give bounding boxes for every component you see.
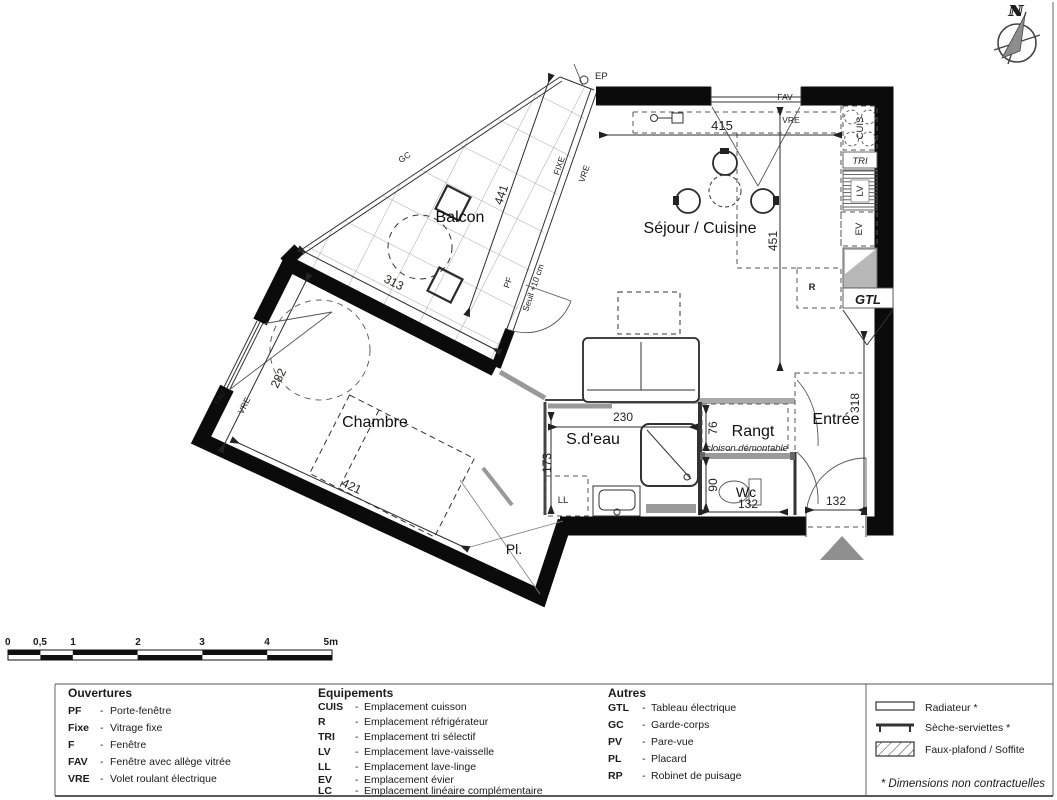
scale-tick-5m: 5m <box>324 637 339 648</box>
legend-item: PF-Porte-fenêtre <box>68 705 171 717</box>
floor-plan-sheet: N N <box>0 0 1057 800</box>
dim-132-entree: 132 <box>826 494 846 508</box>
fridge-label: R <box>809 282 816 293</box>
sejour-furniture <box>583 113 779 402</box>
legend-item: LL-Emplacement lave-linge <box>318 761 476 773</box>
fridge-zone <box>797 268 841 308</box>
dim-173: 173 <box>540 453 554 473</box>
room-label-balcon: Balcon <box>436 209 485 226</box>
tag-cloison: cloison démontable <box>706 443 788 454</box>
room-label-pl: Pl. <box>506 541 522 557</box>
dim-415: 415 <box>711 118 733 133</box>
room-label-chambre: Chambre <box>342 414 408 431</box>
legend-title-ouvertures: Ouvertures <box>68 686 132 700</box>
legend: Ouvertures PF-Porte-fenêtre Fixe-Vitrage… <box>68 686 1045 797</box>
tag-gc: GC <box>396 149 412 164</box>
legend-item: PL-Placard <box>608 753 687 765</box>
dim-421: 421 <box>340 476 364 497</box>
legend-item: Fixe-Vitrage fixe <box>68 722 162 734</box>
legend-note: * Dimensions non contractuelles <box>881 778 1046 790</box>
dim-318: 318 <box>848 393 862 413</box>
soffit-symbol <box>876 742 914 756</box>
sliding-door-chambre <box>500 372 545 398</box>
legend-item: GC-Garde-corps <box>608 719 709 731</box>
room-label-sdeau: S.d'eau <box>566 431 620 448</box>
dining-table <box>709 175 741 207</box>
radiator-symbol <box>876 702 914 710</box>
legend-item: F-Fenêtre <box>68 739 146 751</box>
dim-76: 76 <box>706 421 720 435</box>
legend-item: PV-Pare-vue <box>608 736 694 748</box>
tri-label: TRI <box>852 156 868 167</box>
scale-bar: 0 0,5 1 2 3 4 5m <box>5 637 338 660</box>
scale-tick-3: 3 <box>199 637 205 648</box>
legend-label-faux-plafond: Faux-plafond / Soffite <box>925 744 1025 756</box>
scale-tick-4: 4 <box>264 637 270 648</box>
wc-door-leaf <box>797 452 818 504</box>
legend-item: R-Emplacement réfrigérateur <box>318 716 489 728</box>
cuis-label: CUIS <box>855 117 866 140</box>
legend-label-seche-serviettes: Sèche-serviettes * <box>925 722 1010 734</box>
tag-vre-chambre: VRE <box>236 395 253 415</box>
chair <box>676 189 700 213</box>
chair <box>713 151 737 175</box>
coffee-table <box>618 292 680 334</box>
legend-title-equipements: Equipements <box>318 686 394 700</box>
dim-230: 230 <box>613 410 633 424</box>
scale-tick-1: 1 <box>70 637 76 648</box>
tag-vre-facade: VRE <box>576 163 591 183</box>
room-label-rangt: Rangt <box>732 423 775 440</box>
ep-label: EP <box>595 71 608 82</box>
legend-label-radiateur: Radiateur * <box>925 702 978 714</box>
chair <box>751 189 775 213</box>
legend-title-autres: Autres <box>608 686 646 700</box>
scale-tick-2: 2 <box>135 637 141 648</box>
legend-item: LV-Emplacement lave-vaisselle <box>318 746 494 758</box>
legend-symbols: Radiateur * Sèche-serviettes * Faux-plaf… <box>876 702 1045 790</box>
compass: N N <box>994 2 1040 64</box>
legend-item: GTL-Tableau électrique <box>608 702 736 714</box>
legend-item: CUIS-Emplacement cuisson <box>318 701 467 713</box>
dim-451: 451 <box>766 231 780 251</box>
gtl-label: GTL <box>855 292 881 307</box>
entry-door <box>806 458 867 560</box>
scale-tick-0: 0 <box>5 637 11 648</box>
room-label-entree: Entrée <box>812 411 859 428</box>
legend-item: FAV-Fenêtre avec allège vitrée <box>68 756 231 768</box>
scale-tick-05: 0,5 <box>33 637 47 648</box>
entry-arrow <box>820 536 864 560</box>
compass-north-label: N <box>1009 2 1025 20</box>
room-label-wc: Wc <box>736 484 756 500</box>
tap-icon <box>651 115 658 122</box>
lv-label: LV <box>855 185 866 197</box>
tag-fav-top: FAV <box>777 92 793 102</box>
dim-90: 90 <box>706 478 720 492</box>
ev-label: EV <box>854 222 865 235</box>
tag-vre-top: VRE <box>782 115 800 125</box>
tag-ll: LL <box>558 495 569 506</box>
room-label-sejour: Séjour / Cuisine <box>644 220 757 237</box>
legend-item: VRE-Volet roulant électrique <box>68 773 217 785</box>
towel-radiator <box>646 504 696 513</box>
compass-needle <box>1002 15 1025 58</box>
legend-item: RP-Robinet de puisage <box>608 770 742 782</box>
legend-item: TRI-Emplacement tri sélectif <box>318 731 476 743</box>
sliding-door-pl <box>483 468 512 505</box>
